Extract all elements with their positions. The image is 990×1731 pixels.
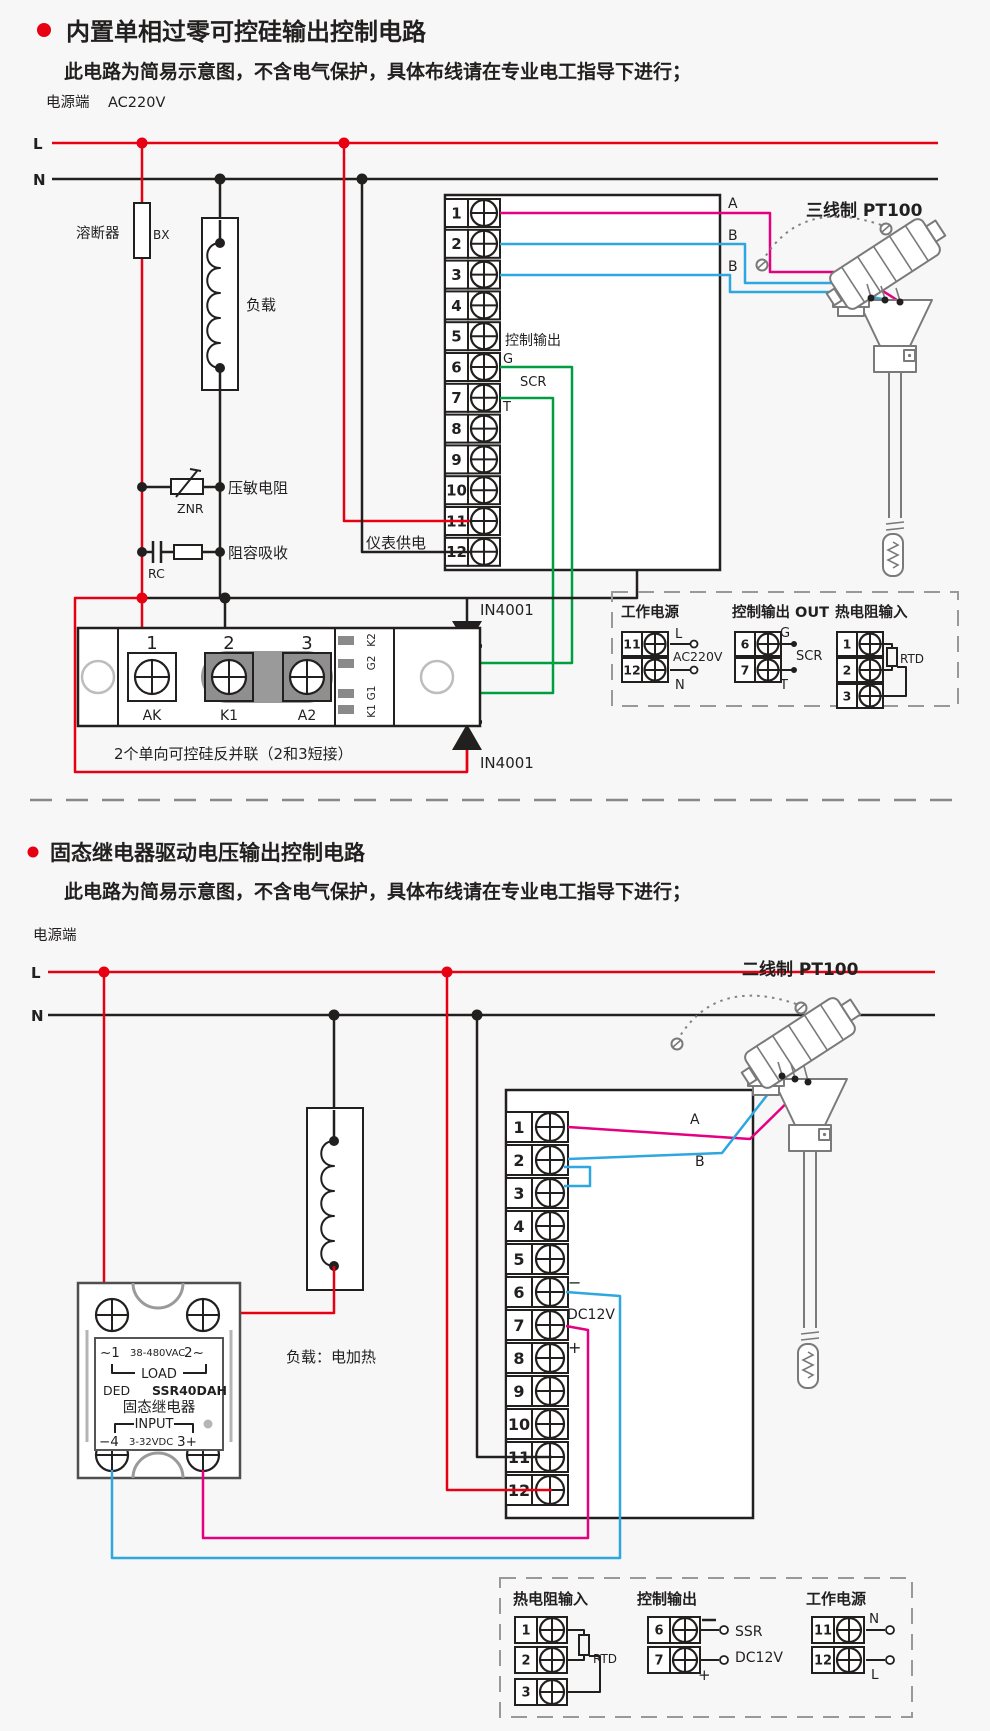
- terminal-number: 2: [521, 1654, 530, 1669]
- terminal-number: 6: [451, 358, 461, 376]
- ssr-vdc: 3-32VDC: [129, 1437, 173, 1448]
- load-label: 负载: [246, 296, 276, 314]
- legend-2: 热电阻输入 控制输出 工作电源 123671112 RTD SSR + DC12…: [500, 1578, 912, 1717]
- section2-title: 固态继电器驱动电压输出控制电路: [50, 841, 366, 865]
- module-pin2: 2: [223, 633, 234, 654]
- neutral-label: N: [33, 171, 46, 189]
- sensor-tip: [883, 534, 903, 576]
- section1-title: 内置单相过零可控硅输出控制电路: [66, 18, 427, 46]
- plus-label: +: [568, 1338, 581, 1357]
- rc-row: 阻容吸收 RC: [137, 541, 288, 581]
- legend-1: 工作电源 控制输出 OUT 热电阻输入 111267123 L AC220V N…: [612, 592, 958, 708]
- rc-code: RC: [148, 566, 165, 581]
- diode1-label: IN4001: [480, 601, 534, 619]
- terminal-number: 5: [513, 1250, 524, 1269]
- legend1-output-title: 控制输出 OUT: [732, 603, 829, 621]
- module-side-g2: G2: [366, 656, 378, 671]
- ssr-load: LOAD: [141, 1367, 177, 1382]
- control-output-label: 控制输出: [505, 333, 561, 349]
- terminal-number: 12: [814, 1654, 832, 1669]
- ssr-led-icon: [204, 1420, 213, 1429]
- sensor-tip: [798, 1344, 818, 1388]
- page: 内置单相过零可控硅输出控制电路 此电路为简易示意图，不含电气保护，具体布线请在专…: [0, 0, 990, 1731]
- terminal-number: 6: [513, 1283, 524, 1302]
- module-pin1-name: AK: [143, 708, 163, 724]
- terminal-number: 4: [513, 1217, 524, 1236]
- fuse-branch: 溶断器 BX: [76, 143, 169, 598]
- legend2-ssr: SSR: [735, 1624, 763, 1640]
- terminal-number: 2: [513, 1151, 524, 1170]
- minus-label: −: [568, 1273, 581, 1292]
- ssr-t1: ~1: [100, 1345, 120, 1361]
- fuse-code: BX: [153, 228, 169, 242]
- legend2-power-title: 工作电源: [806, 1590, 866, 1608]
- terminal-number: 3: [513, 1184, 524, 1203]
- varistor-code: ZNR: [177, 501, 204, 516]
- wire-b2b-label: B: [695, 1154, 705, 1170]
- gate-label: G: [503, 352, 513, 367]
- section2-subtitle: 此电路为简易示意图，不含电气保护，具体布线请在专业电工指导下进行；: [64, 880, 691, 903]
- section2-header: 固态继电器驱动电压输出控制电路 此电路为简易示意图，不含电气保护，具体布线请在专…: [28, 841, 692, 944]
- module-pin3-name: A2: [298, 708, 316, 724]
- pt100-sensor-3wire: 三线制 PT100: [757, 200, 952, 576]
- legend2-l: L: [871, 1667, 879, 1683]
- bullet-icon: [28, 847, 39, 858]
- module-screws: [135, 660, 324, 694]
- terminal-number: 7: [451, 389, 461, 407]
- terminal-number: 9: [451, 451, 461, 469]
- terminal-number: 7: [513, 1316, 524, 1335]
- module-caption: 2个单向可控硅反并联（2和3短接）: [114, 745, 353, 763]
- legend2-output-title: 控制输出: [637, 1590, 697, 1608]
- legend1-g: G: [780, 626, 790, 641]
- terminal-number: 9: [513, 1382, 524, 1401]
- legend1-l: L: [675, 627, 683, 642]
- varistor-symbol: [171, 479, 203, 494]
- terminal-number: 5: [451, 328, 461, 346]
- wire-b1-label: B: [728, 228, 738, 244]
- sensor1-label: 三线制 PT100: [806, 200, 923, 221]
- sensor2-label: 二线制 PT100: [742, 959, 859, 980]
- legend1-power-title: 工作电源: [621, 603, 679, 621]
- diode2-label: IN4001: [480, 754, 534, 772]
- module-side-k1: K1: [366, 704, 378, 718]
- dc12v-label: DC12V: [567, 1307, 615, 1323]
- terminal-number: 12: [623, 663, 640, 678]
- terminal-number: 8: [513, 1349, 524, 1368]
- section1-power-rails: L N: [33, 135, 938, 189]
- terminal-number: 2: [451, 235, 461, 253]
- module-pin2-name: K1: [220, 708, 238, 724]
- terminal-number: 10: [508, 1415, 530, 1434]
- module-side-k2: K2: [366, 633, 378, 647]
- load-branch: 负载: [202, 179, 276, 598]
- terminal-number: 1: [843, 637, 852, 652]
- terminal-number: 11: [623, 637, 640, 652]
- terminal-number: 1: [513, 1118, 524, 1137]
- neutral-label-2: N: [31, 1007, 44, 1025]
- legend1-t: T: [779, 678, 788, 693]
- section1-header: 内置单相过零可控硅输出控制电路 此电路为简易示意图，不含电气保护，具体布线请在专…: [37, 18, 691, 111]
- terminal-number: 1: [521, 1624, 530, 1639]
- varistor-label: 压敏电阻: [228, 479, 288, 497]
- terminal-number: 11: [814, 1624, 832, 1639]
- varistor-row: 压敏电阻 ZNR: [137, 469, 288, 516]
- voltage-label: AC220V: [108, 95, 165, 111]
- scr-label: SCR: [520, 375, 546, 390]
- terminal-number: 4: [451, 297, 461, 315]
- ssr-name: 固态继电器: [123, 1399, 196, 1416]
- rc-label: 阻容吸收: [228, 544, 288, 562]
- ssr-t2: 2~: [184, 1345, 204, 1361]
- ssr-model: SSR40DAH: [152, 1383, 227, 1398]
- terminal-number: 6: [741, 637, 750, 652]
- wire-b2-label: B: [728, 259, 738, 275]
- terminal-number: 7: [741, 663, 750, 678]
- fuse-label: 溶断器: [76, 225, 120, 242]
- ssr-vac: 38-480VAC: [130, 1348, 185, 1359]
- legend2-rtd-title: 热电阻输入: [513, 1590, 588, 1608]
- terminal-number: 3: [843, 689, 852, 704]
- module-side-g1: G1: [366, 686, 378, 701]
- bullet-icon: [37, 23, 51, 37]
- terminal-block-1: 123456789101112: [445, 195, 720, 570]
- terminal-number: 7: [654, 1654, 663, 1669]
- ssr-input: INPUT: [135, 1417, 174, 1432]
- live-label-2: L: [31, 964, 41, 982]
- terminal-number: 10: [446, 482, 467, 500]
- scr-module: 1 2 3 AK K1 A2 K2 G2 G1 K1 2个单向可控硅反并联（2和…: [78, 628, 480, 763]
- meter-supply-label: 仪表供电: [366, 534, 426, 552]
- legend1-n: N: [675, 678, 685, 693]
- wire-a2-label: A: [690, 1112, 700, 1128]
- legend1-cells: 111267123: [622, 632, 883, 708]
- module-pin3: 3: [301, 633, 312, 654]
- terminal-number: 8: [451, 420, 461, 438]
- legend1-voltage: AC220V: [673, 649, 723, 664]
- load-label-2: 负载：电加热: [286, 1348, 376, 1366]
- legend1-rtd: RTD: [900, 652, 924, 666]
- terminal-number: 3: [451, 266, 461, 284]
- live-label: L: [33, 135, 43, 153]
- legend2-n: N: [869, 1611, 879, 1627]
- fuse-symbol: [134, 203, 150, 258]
- terminal-number: 6: [654, 1624, 663, 1639]
- ssr-ded: DED: [103, 1383, 130, 1398]
- legend2-plus: +: [698, 1666, 711, 1684]
- terminal-number: 3: [521, 1686, 530, 1701]
- legend2-dc: DC12V: [735, 1650, 783, 1666]
- wire-a-label: A: [728, 196, 738, 212]
- legend1-scr: SCR: [796, 649, 822, 664]
- terminal-number: 2: [843, 663, 852, 678]
- rail-dots-1: [137, 138, 368, 185]
- legend2-rtd: RTD: [593, 1652, 617, 1666]
- ssr-module: ~1 38-480VAC 2~ LOAD DED SSR40DAH 固态继电器 …: [78, 1283, 240, 1478]
- power-terminal-label: 电源端: [46, 94, 90, 111]
- ssr-p3: 3+: [177, 1434, 197, 1450]
- section1-subtitle: 此电路为简易示意图，不含电气保护，具体布线请在专业电工指导下进行；: [64, 60, 691, 83]
- module-pin1: 1: [146, 633, 157, 654]
- power-terminal-label-2: 电源端: [33, 927, 77, 944]
- terminal-number: 1: [451, 204, 461, 222]
- legend1-rtd-title: 热电阻输入: [835, 603, 908, 621]
- wiring-diagram: 内置单相过零可控硅输出控制电路 此电路为简易示意图，不含电气保护，具体布线请在专…: [0, 0, 990, 1731]
- t-label: T: [502, 400, 511, 415]
- ssr-m4: −4: [99, 1434, 119, 1450]
